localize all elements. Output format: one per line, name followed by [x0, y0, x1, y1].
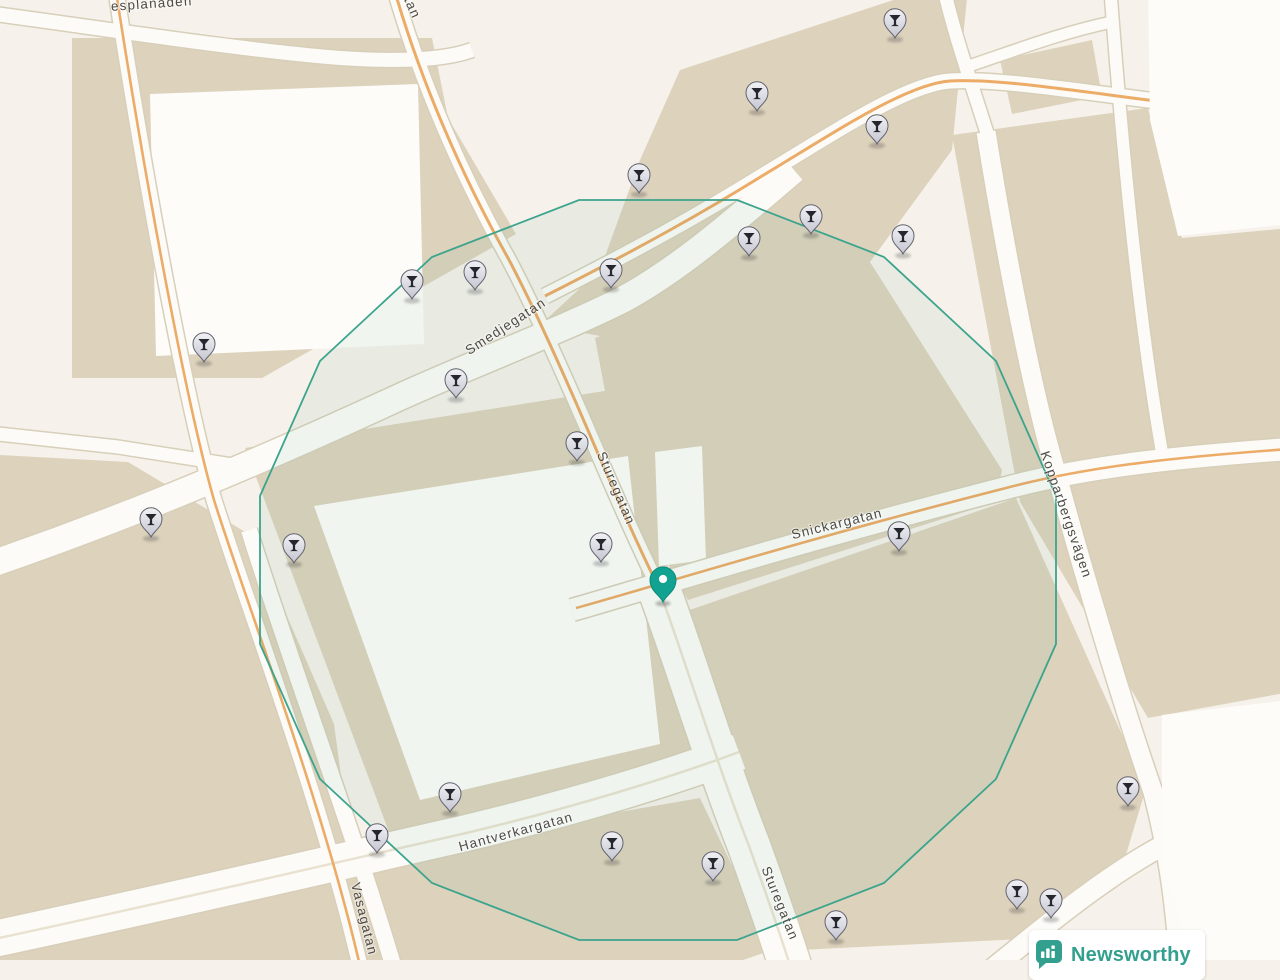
map-canvas[interactable]: esplanadenSturegatanSmedjegatanSturegata…	[0, 0, 1280, 960]
newsworthy-logo-text: Newsworthy	[1071, 943, 1191, 967]
newsworthy-logo-icon	[1036, 940, 1062, 970]
map-screenshot: { "map": { "colors": { "background": "#f…	[0, 0, 1280, 960]
newsworthy-logo[interactable]: Newsworthy	[1029, 930, 1205, 980]
